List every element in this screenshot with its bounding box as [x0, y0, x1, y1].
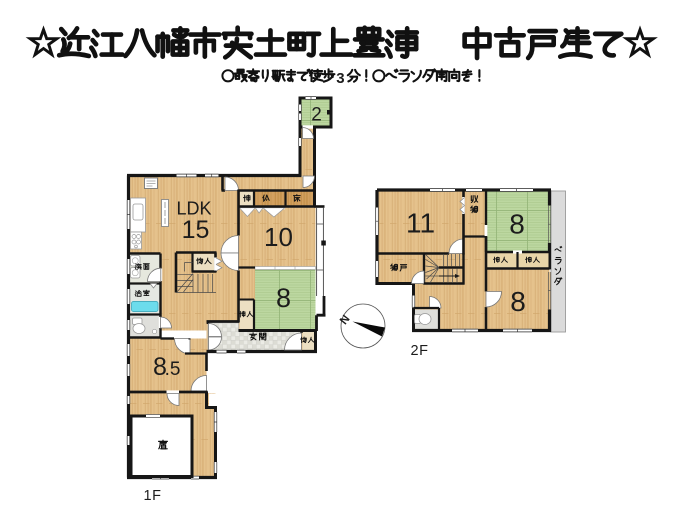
- svg-text:2F: 2F: [411, 343, 429, 359]
- svg-text:.5: .5: [165, 359, 181, 380]
- svg-text:11: 11: [406, 208, 435, 239]
- svg-text:2: 2: [311, 105, 322, 126]
- svg-text:10: 10: [264, 222, 293, 252]
- svg-text:8: 8: [276, 283, 291, 313]
- svg-text:8: 8: [510, 286, 526, 317]
- svg-text:1F: 1F: [144, 488, 162, 504]
- svg-text:8: 8: [509, 209, 525, 240]
- svg-text:3: 3: [336, 70, 344, 87]
- svg-text:15: 15: [182, 216, 210, 244]
